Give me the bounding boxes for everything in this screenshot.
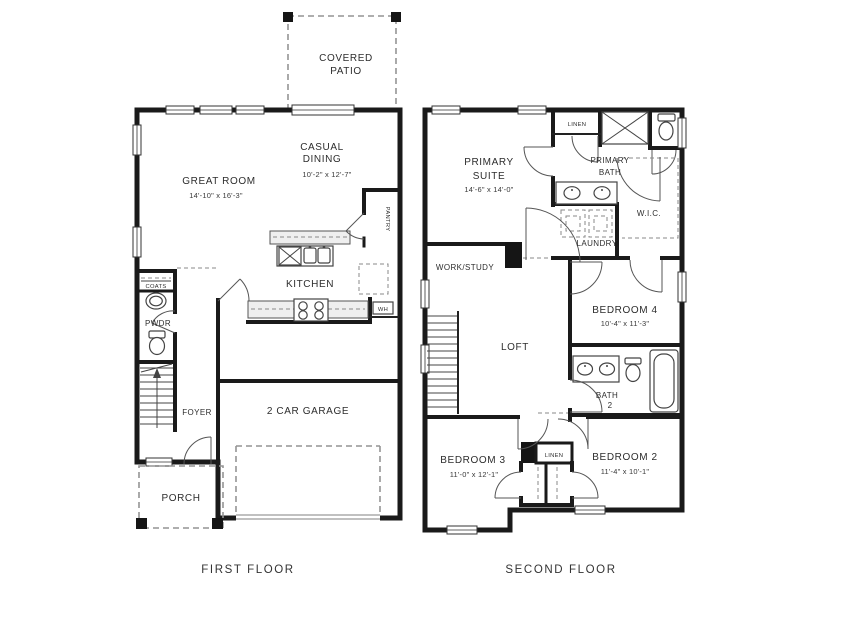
primary-suite-dims: 14'-6" x 14'-0" [464, 185, 513, 194]
kitchen-label: KITCHEN [286, 279, 334, 290]
bath2-vanity-icon [573, 356, 619, 382]
powder-sink-icon [146, 293, 166, 309]
primary-bath-label2: BATH [599, 168, 621, 177]
wic-label: W.I.C. [637, 209, 661, 218]
porch-label: PORCH [161, 493, 200, 504]
covered-patio-label: COVERED [319, 53, 373, 64]
bedroom2-dims: 11'-4" x 10'-1" [601, 467, 650, 476]
casual-dining-label: CASUAL [300, 142, 344, 153]
casual-dining-label2: DINING [303, 154, 342, 165]
vanity-sinks-icon [556, 182, 617, 204]
window-marker [432, 106, 460, 114]
window-marker [133, 125, 141, 155]
bedroom3-dims: 11'-0" x 12'-1" [450, 470, 499, 479]
powder-label: PWDR [145, 319, 171, 328]
loft-label: LOFT [501, 342, 529, 353]
bath-door-swing [524, 147, 553, 176]
bedroom4-label: BEDROOM 4 [592, 305, 657, 316]
porch-post [212, 518, 223, 529]
toilet-room-door-swing [652, 150, 676, 174]
floor-plan-canvas: WH [0, 0, 851, 624]
garage-door-opening [236, 512, 380, 524]
bedroom2-label: BEDROOM 2 [592, 452, 657, 463]
window-marker [575, 506, 605, 514]
kitchen-counter [248, 299, 368, 321]
porch-post [136, 518, 147, 529]
patio-post [391, 12, 401, 22]
window-marker [421, 280, 429, 308]
laundry-label: LAUNDRY [577, 239, 618, 248]
linen-lower-label: LINEN [545, 453, 564, 459]
second-floor-caption: SECOND FLOOR [505, 564, 616, 576]
water-heater-box: WH [373, 302, 393, 314]
toilet-icon [658, 114, 675, 140]
kitchen-island [270, 231, 350, 266]
dishwasher-icon [279, 247, 301, 265]
floor-plan-svg: WH [0, 0, 851, 624]
work-study-label: WORK/STUDY [436, 263, 494, 272]
coats-label: COATS [145, 284, 166, 290]
bath2-toilet-icon [625, 358, 641, 382]
shower-icon [602, 112, 648, 144]
window-marker [236, 106, 264, 114]
stair-direction-arrow [153, 368, 161, 378]
bedroom4-door-swing [570, 260, 662, 294]
stairs-first-floor [140, 364, 173, 428]
window-marker [678, 272, 686, 302]
coats-closet [141, 278, 171, 281]
laundry-door-swing [526, 208, 580, 262]
covered-patio-label2: PATIO [330, 66, 362, 77]
primary-bath-label: PRIMARY [590, 156, 629, 165]
refrigerator-outline [359, 264, 388, 294]
foyer-label: FOYER [182, 408, 212, 417]
window-marker [146, 458, 172, 466]
window-marker [200, 106, 232, 114]
garage-label: 2 CAR GARAGE [267, 406, 349, 417]
primary-suite-label2: SUITE [473, 171, 505, 182]
powder-toilet-icon [149, 331, 165, 355]
primary-suite-label: PRIMARY [464, 157, 514, 168]
linen-upper-label: LINEN [568, 122, 587, 128]
stove-icon [294, 299, 328, 321]
bedroom4-dims: 10'-4" x 11'-3" [601, 319, 650, 328]
bathtub-icon [650, 350, 678, 412]
window-marker [166, 106, 194, 114]
great-room-dims: 14'-10" x 16'-3" [189, 191, 243, 200]
first-floor-caption: FIRST FLOOR [201, 564, 294, 576]
bedroom3-label: BEDROOM 3 [440, 455, 505, 466]
chase-block [505, 242, 522, 268]
washer-dryer-icons [561, 210, 612, 237]
first-floor-plan: WH [133, 12, 401, 576]
bath2-label: BATH [596, 391, 618, 400]
bath2-label2: 2 [608, 401, 613, 410]
garage-door-outline [236, 446, 380, 512]
stairs-second-floor [427, 312, 458, 413]
patio-sliding-door [292, 105, 354, 115]
pantry-label: PANTRY [384, 207, 390, 232]
patio-post [283, 12, 293, 22]
water-heater-label: WH [378, 307, 388, 313]
great-room-label: GREAT ROOM [182, 176, 255, 187]
window-marker [518, 106, 546, 114]
hall-door-swing [218, 279, 249, 301]
window-marker [133, 227, 141, 257]
window-marker [447, 526, 477, 534]
window-marker [678, 118, 686, 148]
window-marker [421, 345, 429, 373]
casual-dining-dims: 10'-2" x 12'-7" [302, 170, 351, 179]
second-floor-plan: PRIMARY SUITE 14'-6" x 14'-0" LINEN PRIM… [421, 106, 686, 576]
wic-shelving [617, 157, 678, 238]
